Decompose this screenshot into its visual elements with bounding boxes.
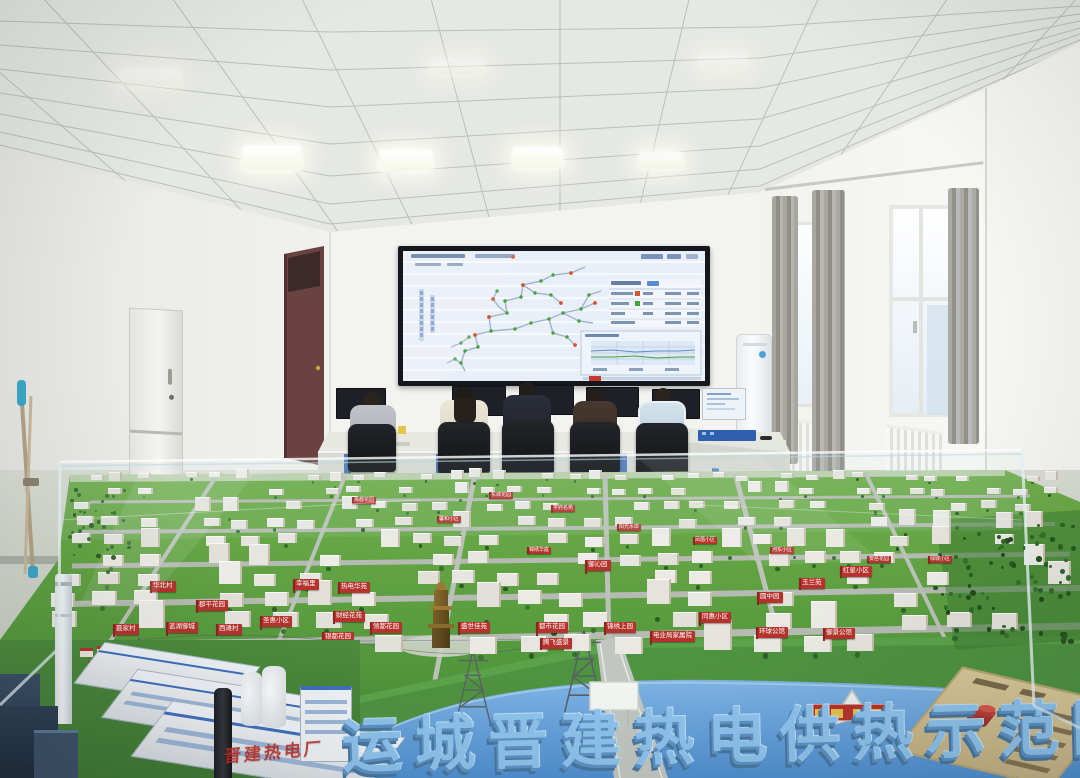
model-building	[559, 593, 583, 607]
model-tree	[896, 547, 900, 551]
model-tree	[459, 584, 464, 589]
model-tree	[425, 480, 428, 483]
control-room-photo: 禹都花园东城花园学府名苑馨和小区阳光水岸凤凰小区河东小区安邑花园绿城小区红星小区…	[0, 0, 1080, 778]
model-tree	[946, 610, 951, 615]
desk-monitor	[702, 388, 746, 420]
model-building	[775, 481, 790, 492]
model-tree	[529, 653, 535, 659]
model-building	[736, 476, 749, 481]
model-tree	[1060, 569, 1065, 574]
model-sign-label: 馨和小区	[437, 516, 461, 523]
model-building	[910, 488, 925, 494]
model-building	[871, 517, 889, 526]
model-sign-label: 锦绣上园	[604, 622, 636, 633]
model-building	[781, 473, 794, 478]
window	[889, 205, 955, 417]
model-sign-pole	[650, 631, 652, 645]
model-tree	[74, 488, 78, 492]
model-tree	[1048, 494, 1051, 497]
model-tree	[1060, 523, 1064, 527]
model-building	[852, 472, 865, 477]
model-tree	[874, 511, 877, 514]
screen-trend-panel	[581, 331, 701, 381]
model-building	[753, 534, 772, 544]
model-tree	[105, 585, 110, 590]
model-sign-pole	[604, 622, 606, 635]
model-sign-label: 东城花园	[489, 492, 513, 499]
model-building	[141, 518, 159, 527]
model-sign-pole	[928, 556, 930, 564]
model-building	[692, 551, 713, 563]
model-sign-pole	[458, 622, 460, 635]
model-sign-pole	[585, 560, 587, 574]
model-building	[927, 572, 950, 585]
model-building	[195, 497, 211, 511]
model-building	[615, 637, 642, 654]
ceiling-light	[380, 150, 432, 171]
model-tree	[123, 489, 126, 492]
model-tree	[79, 510, 82, 513]
model-sign-pole	[867, 556, 869, 563]
model-sign-label: 电业局家属院	[650, 631, 695, 642]
model-building	[236, 469, 249, 478]
model-building	[326, 488, 341, 494]
model-sign-label: 盛世佳苑	[458, 622, 490, 633]
model-building	[1024, 544, 1045, 565]
model-tree	[1039, 597, 1044, 602]
model-building	[375, 635, 402, 652]
model-tree	[933, 586, 938, 591]
model-building	[899, 509, 917, 525]
model-tree	[955, 512, 958, 515]
model-building	[774, 517, 792, 526]
ceiling-light	[640, 152, 682, 169]
model-tree	[1002, 625, 1006, 629]
model-building	[104, 534, 123, 544]
model-building	[109, 472, 122, 481]
model-building	[249, 544, 270, 565]
model-building	[894, 593, 918, 607]
model-sign-label: 领都花园	[370, 622, 402, 633]
model-building	[421, 474, 434, 479]
model-building	[585, 537, 604, 547]
model-sign-pole	[840, 566, 842, 578]
model-tree	[1066, 591, 1071, 596]
model-tree	[113, 511, 117, 515]
model-sign-pole	[699, 612, 701, 626]
model-sign-pole	[527, 547, 529, 554]
model-building	[451, 470, 464, 479]
model-building	[399, 487, 414, 493]
model-tree	[970, 590, 976, 596]
cabinet-handle	[168, 369, 172, 385]
model-sign-label: 玉兰苑	[799, 578, 825, 589]
model-tree	[326, 567, 330, 571]
model-tree	[77, 493, 81, 497]
model-sign-label: 热电华苑	[338, 582, 370, 593]
model-sign-pole	[338, 582, 340, 594]
model-tree	[1019, 512, 1022, 515]
ceiling-light	[430, 60, 484, 74]
model-sign-pole	[551, 505, 553, 513]
model-building	[548, 533, 567, 543]
model-tree	[963, 537, 966, 540]
model-building	[267, 518, 285, 527]
ac-vent	[743, 343, 767, 346]
model-tree	[1001, 553, 1005, 557]
model-building	[688, 473, 701, 478]
model-tree	[1035, 541, 1040, 546]
model-building	[638, 488, 653, 494]
model-tree	[744, 526, 748, 530]
model-building	[722, 528, 741, 546]
model-tree	[832, 556, 836, 560]
model-sign-label: 腾飞盛景	[540, 638, 572, 649]
model-building	[713, 472, 726, 477]
model-building	[689, 571, 712, 584]
model-building	[269, 489, 284, 495]
model-sign-label: 同惠小区	[699, 612, 731, 623]
model-building	[947, 612, 973, 627]
model-sign-label: 圆中园	[757, 592, 783, 603]
scada-wall-screen	[398, 246, 710, 386]
model-building	[587, 488, 602, 494]
model-sign-label: 环球公馆	[756, 627, 788, 638]
model-tree	[361, 528, 365, 532]
model-tree	[1030, 535, 1034, 539]
model-tree	[1004, 633, 1009, 638]
model-building	[223, 497, 239, 511]
model-tree	[330, 495, 333, 498]
model-tree	[73, 513, 77, 517]
model-tree	[954, 555, 958, 559]
model-tree	[977, 605, 982, 610]
model-tree	[626, 545, 630, 549]
model-tree	[696, 585, 701, 590]
model-building	[724, 501, 740, 509]
model-tree	[969, 573, 973, 577]
model-tree	[1030, 575, 1034, 579]
model-tree	[861, 495, 864, 498]
model-sign-label: 绿城小区	[928, 556, 952, 563]
model-tree	[1036, 556, 1042, 562]
model-building	[810, 501, 826, 509]
model-building	[932, 526, 951, 544]
model-building	[987, 488, 1002, 494]
model-building	[140, 554, 161, 566]
model-tree	[591, 628, 596, 633]
model-building	[493, 470, 506, 479]
model-tree	[813, 653, 819, 659]
model-tree	[406, 512, 409, 515]
model-building	[673, 612, 699, 627]
model-building	[1015, 504, 1031, 512]
pagoda-monument	[428, 582, 454, 648]
model-building	[869, 503, 885, 511]
model-tree	[105, 494, 109, 498]
ceiling-light	[700, 55, 746, 68]
model-tree	[437, 511, 440, 514]
model-sign-pole	[540, 638, 542, 650]
cooling-tower	[262, 666, 286, 728]
model-building	[787, 528, 806, 546]
model-tree	[855, 652, 861, 658]
model-tree	[73, 554, 76, 557]
model-building	[620, 555, 641, 567]
model-tree	[143, 496, 146, 499]
model-tree	[82, 526, 86, 530]
model-building	[857, 488, 872, 494]
model-building	[833, 470, 846, 479]
model-building	[570, 474, 583, 479]
model-sign-pole	[536, 622, 538, 636]
model-building	[924, 476, 937, 481]
model-tree	[1050, 537, 1055, 542]
model-tree	[812, 564, 816, 568]
model-building	[518, 516, 536, 525]
model-tree	[89, 523, 93, 527]
model-tree	[1071, 546, 1076, 551]
model-building	[931, 489, 946, 495]
model-sign-label: 幸福里	[293, 579, 319, 590]
model-building	[754, 635, 781, 652]
ceiling-light	[243, 146, 301, 170]
model-tree	[190, 478, 193, 481]
model-building	[951, 503, 967, 511]
model-tree	[1031, 482, 1034, 485]
model-tree	[963, 558, 969, 564]
model-building	[395, 517, 413, 526]
model-sign-label: 红星小区	[840, 566, 872, 577]
model-sign-pole	[150, 581, 152, 593]
model-sign-pole	[693, 537, 695, 545]
model-tree	[989, 561, 993, 565]
model-building	[468, 551, 489, 563]
model-tree	[503, 587, 508, 592]
model-building	[297, 520, 315, 529]
curtain	[812, 190, 845, 476]
model-building	[840, 551, 861, 563]
model-building	[432, 502, 448, 510]
model-tree	[968, 584, 972, 588]
model-building	[652, 528, 671, 546]
model-tree	[101, 500, 104, 503]
model-tree	[274, 496, 277, 499]
model-sign-label: 都市花园	[536, 622, 568, 633]
model-building	[658, 553, 679, 565]
model-building	[209, 543, 230, 564]
model-tree	[998, 547, 1002, 551]
model-tree	[236, 530, 240, 534]
model-building	[455, 482, 470, 493]
model-building	[738, 517, 756, 526]
model-tree	[1017, 496, 1020, 499]
model-building	[890, 536, 909, 546]
model-building	[518, 590, 542, 604]
model-building	[799, 488, 814, 494]
model-building	[664, 501, 680, 509]
model-sign-label: 学府名苑	[551, 505, 575, 512]
model-tree	[901, 608, 906, 613]
model-building	[662, 475, 675, 480]
ceiling-light	[120, 70, 180, 86]
model-tree	[966, 565, 971, 570]
model-building	[584, 518, 602, 527]
model-tree	[97, 520, 101, 524]
model-building	[805, 551, 826, 563]
model-building	[204, 518, 222, 527]
model-building	[92, 591, 116, 605]
model-building	[981, 500, 997, 508]
model-tree	[880, 564, 884, 568]
model-building	[769, 554, 790, 566]
model-tree	[591, 495, 594, 498]
model-building	[487, 504, 503, 512]
model-tree	[655, 617, 660, 622]
model-building	[209, 472, 222, 477]
model-tree	[1049, 588, 1055, 594]
model-building	[542, 473, 555, 478]
model-tree	[1001, 539, 1006, 544]
model-tree	[127, 546, 131, 550]
model-building	[138, 473, 151, 478]
model-tree	[986, 509, 989, 512]
model-tree	[793, 556, 797, 560]
model-building	[278, 533, 297, 543]
model-tree	[284, 544, 288, 548]
model-tree	[102, 525, 106, 529]
model-tree	[935, 497, 938, 500]
model-building	[320, 555, 341, 567]
model-tree	[1044, 562, 1048, 566]
model-building	[589, 470, 602, 479]
model-tree	[376, 509, 379, 512]
model-building	[108, 488, 123, 494]
model-sign-pole	[293, 579, 295, 593]
model-building	[413, 533, 432, 543]
model-building	[74, 502, 90, 510]
model-tree	[952, 636, 958, 642]
model-tree	[496, 484, 499, 487]
model-building	[101, 516, 119, 525]
model-building	[1013, 489, 1028, 495]
model-tree	[966, 595, 971, 600]
model-tree	[106, 548, 109, 551]
model-tree	[992, 607, 995, 610]
model-tree	[1040, 532, 1046, 538]
model-building	[91, 475, 104, 480]
model-tree	[71, 531, 74, 534]
model-tree	[699, 564, 703, 568]
model-tree	[122, 519, 125, 522]
model-tree	[110, 545, 114, 549]
model-sign-label: 御景公馆	[823, 628, 855, 639]
model-sign-label: 河东小区	[770, 547, 794, 554]
model-tree	[664, 566, 668, 570]
model-tree	[1038, 588, 1043, 593]
model-tree	[804, 495, 807, 498]
model-tree	[485, 495, 488, 498]
model-building	[356, 519, 374, 528]
model-tree	[954, 628, 959, 633]
model-tree	[78, 544, 82, 548]
model-tree	[546, 479, 549, 482]
model-tree	[106, 570, 110, 574]
model-tree	[775, 567, 779, 571]
model-building	[346, 486, 361, 492]
model-tree	[312, 481, 315, 484]
model-sign-label: 御沁园	[585, 560, 611, 571]
model-tree	[591, 548, 595, 552]
model-building	[906, 475, 919, 480]
window-handle	[913, 321, 917, 333]
model-sign-label: 锦绣华庭	[527, 547, 551, 554]
model-tree	[1010, 627, 1015, 632]
model-tree	[1023, 546, 1026, 549]
cabinet-lock	[169, 395, 174, 400]
model-sign-label: 凤凰小区	[693, 537, 717, 544]
model-sign-label: 阳光水岸	[617, 524, 641, 531]
model-building	[647, 579, 671, 604]
model-building	[688, 592, 712, 606]
model-building	[779, 500, 795, 508]
model-tree	[882, 495, 885, 498]
screen-data-table	[609, 279, 701, 327]
model-building	[679, 519, 697, 528]
model-sign-pole	[757, 592, 759, 605]
model-building	[704, 620, 731, 650]
model-tree	[485, 546, 489, 550]
model-sign-pole	[823, 628, 825, 641]
model-tree	[542, 494, 545, 497]
model-tree	[478, 655, 484, 661]
model-tree	[473, 482, 476, 485]
model-tree	[986, 596, 989, 599]
model-building	[477, 582, 501, 607]
model-building	[186, 472, 199, 477]
model-tree	[941, 593, 944, 596]
model-building	[141, 528, 160, 546]
model-tree	[1033, 587, 1038, 592]
model-building	[634, 502, 650, 510]
model-tree	[1058, 594, 1063, 599]
model-building	[1025, 511, 1043, 527]
model-tree	[1064, 559, 1067, 562]
model-tree	[403, 494, 406, 497]
model-sign-pole	[617, 524, 619, 531]
model-tree	[1001, 566, 1004, 569]
model-building	[902, 615, 928, 630]
chimney	[55, 574, 72, 724]
model-building	[548, 518, 566, 527]
model-tree	[1020, 626, 1025, 631]
model-building	[219, 561, 242, 584]
model-building	[308, 475, 321, 480]
model-building	[352, 592, 376, 606]
model-building	[452, 570, 475, 583]
model-building	[689, 501, 705, 509]
model-tree	[1039, 631, 1043, 635]
model-tree	[572, 652, 578, 658]
ceiling-light	[513, 148, 562, 168]
model-tree	[1058, 544, 1064, 550]
model-building	[1045, 471, 1058, 480]
model-building	[479, 535, 498, 545]
model-building	[470, 637, 497, 654]
model-tree	[856, 478, 859, 481]
model-sign-pole	[489, 492, 491, 499]
model-sign-pole	[370, 622, 372, 635]
